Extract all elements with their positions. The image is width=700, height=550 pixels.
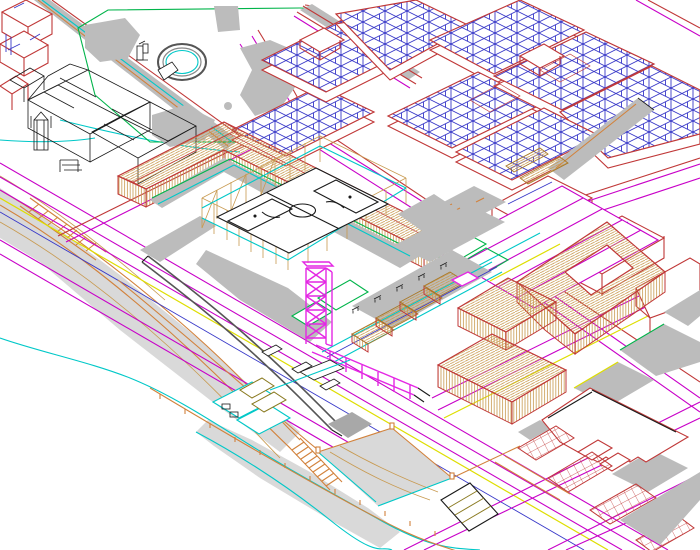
hatched-slab-buildings	[438, 278, 566, 424]
park-monument	[136, 41, 148, 60]
sports-court	[441, 483, 498, 531]
corner-buildings	[0, 0, 52, 110]
plan-drawing	[0, 0, 700, 550]
circular-plaza	[158, 44, 206, 80]
cad-city-plan[interactable]	[0, 0, 700, 550]
